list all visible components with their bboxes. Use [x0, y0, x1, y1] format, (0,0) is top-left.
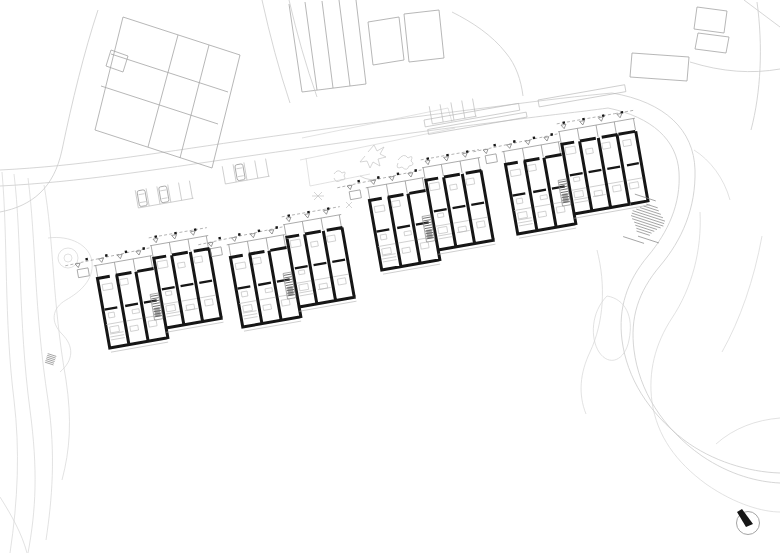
car: [159, 186, 170, 203]
parking-row-west: [135, 181, 193, 208]
car: [235, 164, 246, 181]
site-plan-drawing: [0, 0, 780, 553]
slope-steps-west: [45, 354, 56, 365]
terrain-contours-west: [0, 172, 69, 553]
housing-block-1: [63, 226, 225, 357]
parking-row-east: [429, 98, 476, 124]
north-arrow-icon: [737, 509, 760, 535]
parking-row-middle: [222, 158, 269, 184]
context-buildings-northeast: [630, 0, 780, 130]
housing-block-4: [471, 109, 652, 243]
garden-path-and-tree-west: [48, 237, 92, 372]
context-buildings-north: [262, 0, 523, 103]
context-buildings-northwest: [0, 10, 240, 212]
street-band-north: [0, 93, 612, 186]
street-loop-east: [608, 93, 780, 483]
housing-block-3: [335, 148, 497, 279]
car: [137, 190, 148, 207]
site-plan-canvas: [0, 0, 780, 553]
